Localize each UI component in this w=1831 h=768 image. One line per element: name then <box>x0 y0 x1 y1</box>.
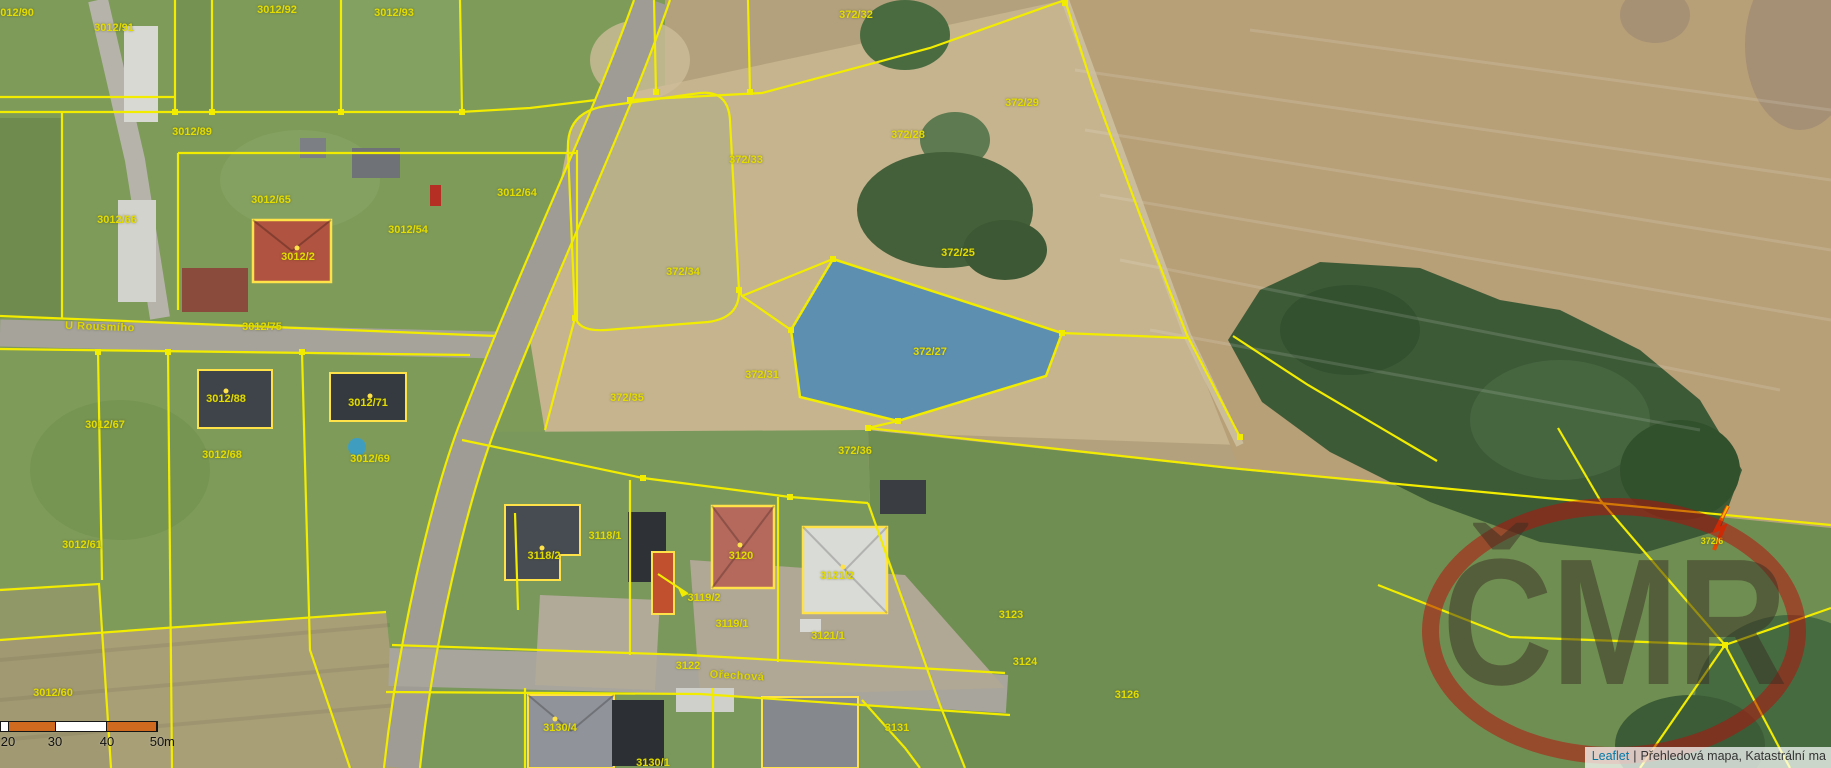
leaflet-link[interactable]: Leaflet <box>1592 749 1630 763</box>
attribution-separator: | <box>1633 749 1636 763</box>
house-3012-88 <box>198 370 272 428</box>
car <box>800 619 821 632</box>
scale-bar-segment <box>107 722 157 731</box>
pool <box>348 438 366 456</box>
scale-tick: 40 <box>100 734 114 749</box>
scale-bar-segments <box>0 721 158 732</box>
attribution: Leaflet|Přehledová mapa, Katastrální ma <box>1585 747 1831 768</box>
leaflet-map-viewport[interactable]: 3012/903012/913012/923012/933012/893012/… <box>0 0 1831 768</box>
scale-bar-segment <box>9 722 56 731</box>
attribution-layers: Přehledová mapa, Katastrální ma <box>1640 749 1826 763</box>
scale-unit: m <box>164 734 175 749</box>
barn-roof <box>118 200 156 302</box>
scale-bar: m 20304050 <box>0 721 158 750</box>
car <box>430 185 441 206</box>
map-canvas[interactable] <box>0 0 1831 768</box>
scale-tick: 30 <box>48 734 62 749</box>
scale-bar-segment <box>56 722 108 731</box>
scale-tick: 20 <box>1 734 15 749</box>
scale-bar-ticks: m 20304050 <box>0 734 158 750</box>
scale-bar-segment <box>1 722 9 731</box>
barn-roof <box>124 26 158 122</box>
scale-tick: 50 <box>150 734 164 749</box>
